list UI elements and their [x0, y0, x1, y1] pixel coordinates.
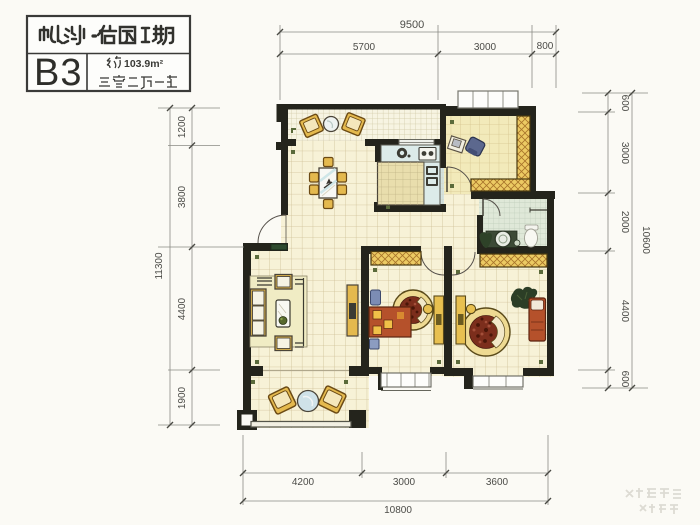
svg-text:4400: 4400: [619, 300, 630, 323]
svg-text:600: 600: [619, 371, 630, 388]
svg-text:9500: 9500: [400, 19, 424, 31]
svg-text:2000: 2000: [619, 211, 630, 234]
svg-text:4400: 4400: [177, 297, 188, 320]
svg-text:3000: 3000: [474, 42, 497, 53]
svg-text:600: 600: [619, 95, 630, 112]
svg-text:5700: 5700: [353, 42, 376, 53]
svg-text:3600: 3600: [486, 477, 509, 488]
svg-text:3800: 3800: [177, 185, 188, 208]
svg-text:3000: 3000: [393, 477, 416, 488]
svg-text:3000: 3000: [619, 142, 630, 165]
svg-text:103.9m²: 103.9m²: [124, 58, 164, 70]
svg-text:10800: 10800: [384, 505, 412, 516]
svg-text:1200: 1200: [177, 115, 188, 138]
svg-text:B3: B3: [34, 52, 82, 94]
svg-text:4200: 4200: [292, 477, 315, 488]
svg-text:800: 800: [537, 41, 554, 52]
svg-text:1900: 1900: [177, 386, 188, 409]
svg-text:10600: 10600: [640, 226, 651, 254]
svg-text:11300: 11300: [154, 252, 165, 280]
